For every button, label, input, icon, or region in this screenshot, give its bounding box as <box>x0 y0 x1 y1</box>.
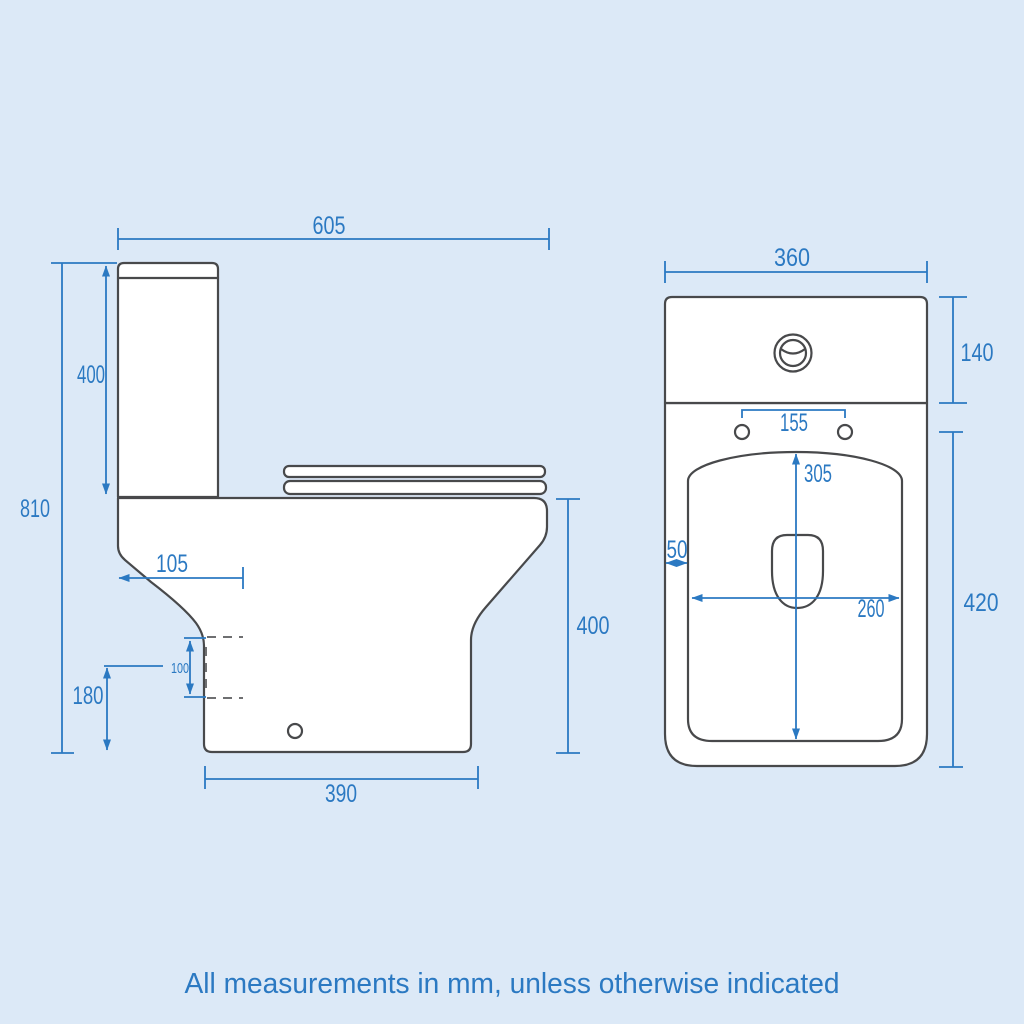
technical-drawing-canvas: 605 810 400 105 180 <box>0 0 1024 1024</box>
seat-lid-profile <box>284 466 545 477</box>
dim-base-depth-label: 390 <box>325 780 357 808</box>
measurement-note: All measurements in mm, unless otherwise… <box>185 968 840 1000</box>
dim-overall-width-label: 360 <box>774 244 810 272</box>
dim-cistern-height-label: 400 <box>77 361 105 389</box>
spec-drawing-page: 605 810 400 105 180 <box>0 0 1024 1024</box>
dim-overall-depth-label: 605 <box>313 212 346 240</box>
dim-pan-height-front-label: 420 <box>964 589 999 617</box>
dim-pan-height-side: 400 <box>556 499 610 753</box>
cistern-side-outline <box>118 263 218 497</box>
dim-outlet-height-label: 180 <box>73 682 104 710</box>
pan-side-outline <box>118 498 547 752</box>
dim-pan-height-front: 420 <box>939 432 999 767</box>
front-view: 360 140 155 305 50 260 <box>665 244 999 767</box>
dim-overall-width: 360 <box>665 244 927 283</box>
dim-pan-height-side-label: 400 <box>577 612 610 640</box>
dim-outlet-size-label: 100 <box>171 660 189 677</box>
dim-overall-depth: 605 <box>118 212 549 250</box>
side-view: 605 810 400 105 180 <box>20 212 610 808</box>
dim-cistern-front-height-label: 140 <box>961 339 994 367</box>
seat-ring-profile <box>284 481 546 494</box>
dim-bowl-inner-length-label: 305 <box>804 460 832 488</box>
dim-rim-width-label: 50 <box>667 536 688 564</box>
dim-rim-width: 50 <box>666 536 688 564</box>
dim-hinge-centres-label: 155 <box>780 409 808 437</box>
dim-overall-height-label: 810 <box>20 495 50 523</box>
dim-cistern-front-height: 140 <box>939 297 994 403</box>
dim-front-projection-label: 105 <box>156 550 188 578</box>
dim-cistern-height: 400 <box>77 266 106 494</box>
dim-outlet-height: 180 <box>73 666 164 750</box>
dim-bowl-inner-width-label: 260 <box>858 595 885 623</box>
dim-overall-height: 810 <box>20 263 117 753</box>
fixing-hole <box>288 724 302 738</box>
dim-base-depth: 390 <box>205 766 478 808</box>
cistern-front-outline <box>665 297 927 403</box>
dim-outlet-size: 100 <box>171 638 206 697</box>
